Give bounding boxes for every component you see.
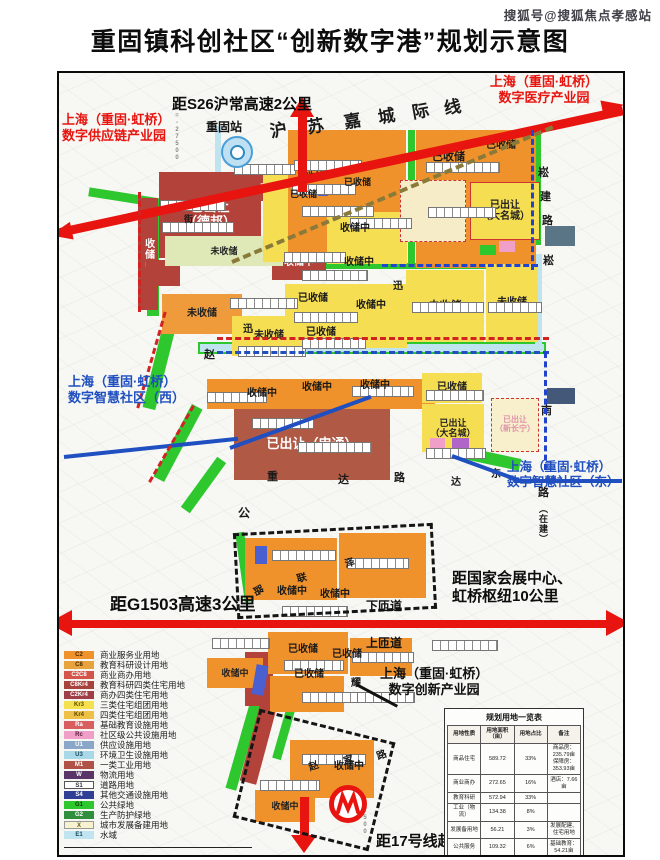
map-label: 已收储 xyxy=(332,650,362,660)
map-label: 崧 xyxy=(538,168,549,179)
legend-swatch: X xyxy=(64,821,94,829)
callout-expo: 距国家会展中心、虹桥枢纽10公里 xyxy=(452,570,572,606)
table-cell: 公共服务 xyxy=(448,839,481,857)
table-cell: 3% xyxy=(514,821,547,839)
map-parcel xyxy=(181,457,226,514)
map-label: Y=-27500 xyxy=(174,106,180,162)
parcel-status-label: 收储中 xyxy=(221,668,248,678)
map-label: 收储中 xyxy=(360,381,390,391)
shanghai-metro-logo-icon xyxy=(328,784,368,824)
map-label: 已收储 xyxy=(294,670,324,680)
parcel-status-label: 未收储 xyxy=(210,246,237,256)
legend-swatch: S4 xyxy=(64,791,94,799)
map-label: 达 xyxy=(451,478,461,488)
legend-label: 水域 xyxy=(100,829,117,841)
map-label: 收储中 xyxy=(344,258,374,268)
legend-swatch: U1 xyxy=(64,741,94,749)
table-cell: 酒店：7.66亩 xyxy=(547,775,580,793)
parcel-data-strip xyxy=(412,302,484,313)
map-label: 崧 xyxy=(543,256,554,267)
callout-s26: 距S26沪常高速2公里 xyxy=(172,96,312,114)
table-cell: 发展备用地 xyxy=(448,821,481,839)
parcel-data-strip xyxy=(298,442,372,453)
boundary-dashed-blue xyxy=(544,352,547,470)
parcel-data-strip xyxy=(162,222,234,233)
legend-swatch: U3 xyxy=(64,751,94,759)
map-label: 已收储 xyxy=(344,178,371,187)
boundary-dashed-blue xyxy=(382,264,538,267)
table-cell: 56.21 xyxy=(481,821,514,839)
g1503-arrow-right-icon xyxy=(606,610,625,636)
parcel-status-label: 已出让 （新长宁） xyxy=(495,416,535,434)
legend-swatch: C8 xyxy=(64,661,94,669)
table-cell: 109.32 xyxy=(481,839,514,857)
map-label: 城 xyxy=(377,107,397,127)
map-parcel: 已出让 （新长宁） xyxy=(491,398,539,452)
south-cluster-boundary xyxy=(233,709,396,852)
map-label: 嘉 xyxy=(343,112,363,132)
callout-west-community: 上海（重固·虹桥）数字智慧社区（西） xyxy=(68,374,185,405)
map-label: 迅 xyxy=(393,282,403,292)
scale-bar xyxy=(64,847,252,848)
table-row: 商业商办272.6516%酒店：7.66亩 xyxy=(448,775,581,793)
table-header-cell: 用地占比 xyxy=(514,726,547,744)
legend-item: X城市发展备建用地 xyxy=(64,820,185,830)
map-label: 赵 xyxy=(204,350,215,361)
metro-station-icon xyxy=(221,136,253,168)
table-row: 发展备用地56.213%发展配建、住宅用地 xyxy=(448,821,581,839)
legend-swatch: W xyxy=(64,771,94,779)
map-label: 路 xyxy=(542,216,553,227)
legend-swatch: S1 xyxy=(64,781,94,789)
map-label: 路 xyxy=(394,473,405,484)
planning-map: 已出让 （德邦）收储中已收储收储中已出让（申通）未收储未收储收储中收储中未收储未… xyxy=(57,71,625,857)
landuse-table: 规划用地一览表 用地性质用地面积（亩）用地占比备注商品住宅589.7233%商品… xyxy=(444,708,584,857)
map-label: 达 xyxy=(338,475,349,486)
table-cell: 272.65 xyxy=(481,775,514,793)
table-row: 工业（物流）134.388% xyxy=(448,803,581,821)
south-cluster-boundary xyxy=(233,523,437,619)
table-cell: 商品房：235.79亩 保障房：353.93亩 xyxy=(547,743,580,775)
callout-innovation-park: 上海（重固·虹桥）数字创新产业园 xyxy=(380,666,488,697)
map-label: 收储中 xyxy=(340,224,370,234)
table-header-cell: 用地性质 xyxy=(448,726,481,744)
parcel-data-strip xyxy=(284,252,346,263)
west-boundary-line xyxy=(64,437,238,459)
map-label: 收储中 xyxy=(356,301,386,311)
north-red-arrow-shaft xyxy=(298,116,307,192)
parcel-data-strip xyxy=(426,390,484,401)
g1503-line xyxy=(64,620,616,628)
parcel-data-strip xyxy=(428,207,496,218)
table-row: 公共服务109.326%基础教育：54.21亩 xyxy=(448,839,581,857)
legend-swatch: G1 xyxy=(64,801,94,809)
map-label: 建 xyxy=(540,192,551,203)
map-label: 公 xyxy=(238,507,250,519)
map-label: 已收储 xyxy=(298,294,328,304)
table-row: 商品住宅589.7233%商品房：235.79亩 保障房：353.93亩 xyxy=(448,743,581,775)
legend-swatch: Rc xyxy=(64,731,94,739)
map-label: 沪 xyxy=(269,121,289,141)
legend-swatch: C2 xyxy=(64,651,94,659)
table-cell: 33% xyxy=(514,793,547,804)
map-parcel xyxy=(547,388,575,404)
parcel-data-strip xyxy=(294,312,358,323)
table-cell xyxy=(547,803,580,821)
legend-swatch: M1 xyxy=(64,761,94,769)
legend-swatch: E1 xyxy=(64,831,94,839)
legend-swatch: Ra xyxy=(64,721,94,729)
table-row: 教育科研572.9433% xyxy=(448,793,581,804)
callout-down-ramp: 下匝道 xyxy=(366,599,402,613)
table-header-cell: 备注 xyxy=(547,726,580,744)
map-parcel xyxy=(545,226,575,246)
callout-east-community: 上海（重固·虹桥）数字智慧社区（东） xyxy=(507,460,620,490)
map-label: 迅 xyxy=(243,325,253,335)
callout-medical-park: 上海（重固·虹桥）数字医疗产业园 xyxy=(464,74,624,105)
map-parcel xyxy=(480,245,496,255)
map-label: 收储中 xyxy=(302,383,332,393)
boundary-dashed-blue xyxy=(217,351,549,354)
boundary-dashed-red xyxy=(217,337,549,340)
map-legend: C2商业服务业用地C8教育科研设计用地C2C8商业商办用地C8Kr4教育科研四类… xyxy=(64,650,185,840)
boundary-dashed-blue xyxy=(531,130,534,270)
table-cell: 33% xyxy=(514,743,547,775)
station-label: 重固站 xyxy=(206,120,242,134)
landuse-table-title: 规划用地一览表 xyxy=(447,712,581,723)
legend-swatch: Kr4 xyxy=(64,711,94,719)
legend-swatch: G2 xyxy=(64,811,94,819)
table-cell: 6% xyxy=(514,839,547,857)
callout-up-ramp: 上匝道 xyxy=(366,636,402,650)
map-label: 线 xyxy=(443,98,463,118)
parcel-data-strip xyxy=(432,640,498,651)
legend-swatch: Kr3 xyxy=(64,701,94,709)
page-title: 重固镇科创社区“创新数字港”规划示意图 xyxy=(0,22,660,58)
map-label: （在建） xyxy=(538,504,547,544)
callout-supply-park: 上海（重固·虹桥）数字供应链产业园 xyxy=(62,112,170,143)
parcel-status-label: 未收储 xyxy=(187,308,217,319)
table-cell: 基础教育：54.21亩 xyxy=(547,839,580,857)
parcel-status-label: 已出让 （大名城） xyxy=(430,418,475,438)
table-cell: 工业（物流） xyxy=(448,803,481,821)
map-label: 已收储 xyxy=(288,645,318,655)
parcel-data-strip xyxy=(230,298,298,309)
table-cell xyxy=(547,793,580,804)
map-label: 苏 xyxy=(306,117,326,137)
parcel-data-strip xyxy=(212,638,270,649)
g1503-arrow-left-icon xyxy=(57,610,72,636)
map-parcel xyxy=(499,241,515,252)
table-cell: 商业商办 xyxy=(448,775,481,793)
table-cell: 134.38 xyxy=(481,803,514,821)
table-cell: 589.72 xyxy=(481,743,514,775)
callout-g1503: 距G1503高速3公里 xyxy=(110,595,256,615)
legend-swatch: C8Kr4 xyxy=(64,681,94,689)
parcel-data-strip xyxy=(488,302,542,313)
legend-swatch: C2C8 xyxy=(64,671,94,679)
map-label: 际 xyxy=(411,102,431,122)
table-cell: 商品住宅 xyxy=(448,743,481,775)
table-cell: 16% xyxy=(514,775,547,793)
map-label: 街 xyxy=(184,215,193,224)
parcel-data-strip xyxy=(302,270,368,281)
boundary-dashed-red xyxy=(138,192,141,312)
legend-item: E1水域 xyxy=(64,830,185,840)
table-cell: 572.94 xyxy=(481,793,514,804)
legend-swatch: C2Kr4 xyxy=(64,691,94,699)
table-cell: 8% xyxy=(514,803,547,821)
map-label: 重 xyxy=(267,472,278,483)
table-cell: 教育科研 xyxy=(448,793,481,804)
table-header-cell: 用地面积（亩） xyxy=(481,726,514,744)
table-cell: 发展配建、住宅用地 xyxy=(547,821,580,839)
map-label: 收储中 xyxy=(247,389,277,399)
